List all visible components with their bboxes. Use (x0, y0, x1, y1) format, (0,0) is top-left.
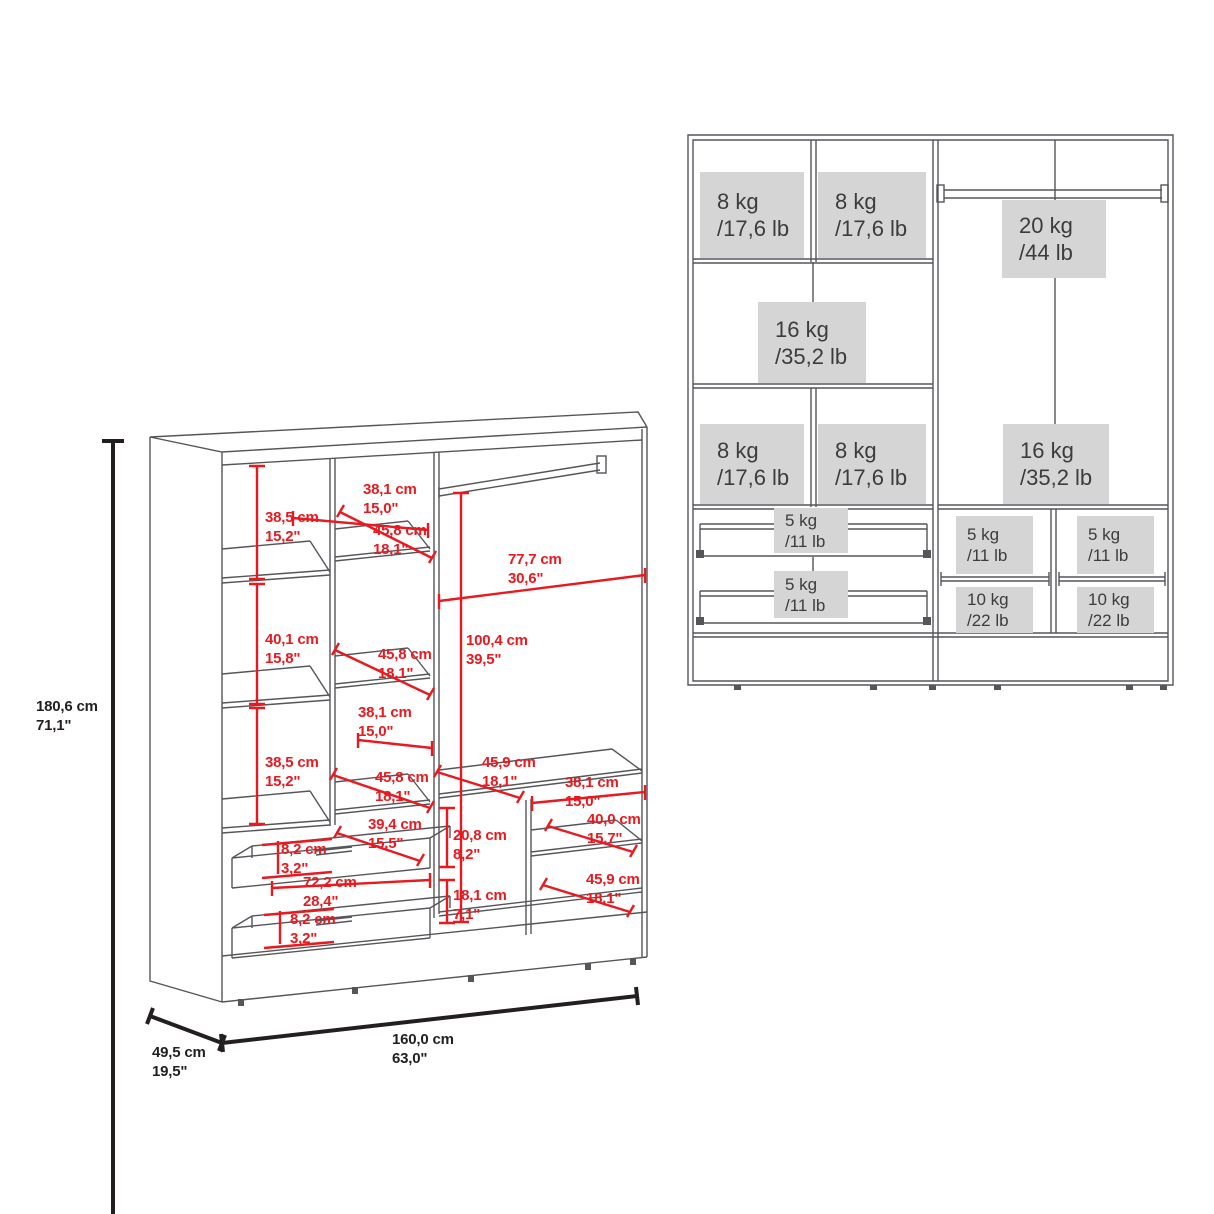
dim-in: 19,5" (152, 1062, 206, 1081)
wardrobe-feet (238, 958, 636, 1006)
dim-cm: 45,8 cm (375, 768, 429, 787)
dim-hanging-area-width: 77,7 cm 30,6" (508, 550, 562, 588)
capacity-kg: 5 kg (785, 574, 848, 595)
dim-overall-depth: 49,5 cm 19,5" (152, 1043, 206, 1081)
capacity-lb: /17,6 lb (835, 464, 926, 491)
dim-cm: 38,1 cm (358, 703, 412, 722)
capacity-lb: /17,6 lb (835, 215, 926, 242)
dim-cm: 45,8 cm (378, 645, 432, 664)
dim-right-upper-cubby-height: 20,8 cm 8,2" (453, 826, 507, 864)
capacity-lower-right-shelf: 8 kg /17,6 lb (818, 424, 926, 504)
dim-cm: 72,2 cm (303, 873, 357, 892)
capacity-lb: /17,6 lb (717, 464, 804, 491)
capacity-top-right-shelf: 8 kg /17,6 lb (818, 172, 926, 258)
dim-cm: 38,1 cm (363, 480, 417, 499)
capacity-middle-wide-shelf: 16 kg /35,2 lb (758, 302, 866, 383)
dim-cm: 45,9 cm (482, 753, 536, 772)
capacity-lb: /11 lb (1088, 545, 1154, 566)
dim-cm: 49,5 cm (152, 1043, 206, 1062)
capacity-kg: 5 kg (1088, 524, 1154, 545)
capacity-right-bottom-left-column: 10 kg /22 lb (956, 587, 1033, 633)
capacity-lower-left-shelf: 8 kg /17,6 lb (700, 424, 804, 504)
capacity-right-shelf-left-column: 5 kg /11 lb (956, 516, 1033, 574)
dim-in: 8,2" (453, 845, 507, 864)
capacity-lb: /22 lb (967, 610, 1033, 631)
capacity-hanging-section: 16 kg /35,2 lb (1003, 424, 1109, 504)
capacity-kg: 5 kg (785, 510, 848, 531)
capacity-kg: 5 kg (967, 524, 1033, 545)
dim-in: 39,5" (466, 650, 528, 669)
capacity-lb: /11 lb (785, 595, 848, 616)
dim-top-left-cell-height: 38,5 cm 15,2" (265, 508, 319, 546)
capacity-drawer-2: 5 kg /11 lb (774, 571, 848, 618)
dim-cm: 40,0 cm (587, 810, 641, 829)
dim-in: 15,0" (363, 499, 417, 518)
dim-cm: 180,6 cm (36, 697, 98, 716)
dim-middle-shelf-depth: 45,8 cm 18,1" (378, 645, 432, 683)
dim-bottom-right-shelf-depth: 45,9 cm 18,1" (586, 870, 640, 908)
dim-in: 3,2" (290, 929, 336, 948)
dim-in: 71,1" (36, 716, 98, 735)
capacity-lb: /11 lb (785, 531, 848, 552)
dim-in: 18,1" (375, 787, 429, 806)
capacity-hanging-rod: 20 kg /44 lb (1002, 200, 1106, 278)
capacity-kg: 10 kg (1088, 589, 1154, 610)
dim-cm: 20,8 cm (453, 826, 507, 845)
dim-lower-left-cell-height: 38,5 cm 15,2" (265, 753, 319, 791)
capacity-right-shelf-right-column: 5 kg /11 lb (1077, 516, 1154, 574)
dim-in: 15,5" (368, 834, 422, 853)
dim-cm: 8,2 cm (290, 910, 336, 929)
capacity-lb: /22 lb (1088, 610, 1154, 631)
capacity-lb: /35,2 lb (1020, 464, 1109, 491)
dim-middle-cell-width: 38,1 cm 15,0" (358, 703, 412, 741)
dim-top-shelf-depth: 45,8 cm 18,1" (373, 521, 427, 559)
dim-lower-shelf-depth: 45,8 cm 18,1" (375, 768, 429, 806)
dim-in: 30,6" (508, 569, 562, 588)
capacity-kg: 8 kg (717, 437, 804, 464)
dim-in: 18,1" (586, 889, 640, 908)
dim-in: 15,7" (587, 829, 641, 848)
dim-right-lower-cubby-height: 18,1 cm 7,1" (453, 886, 507, 924)
capacity-kg: 20 kg (1019, 212, 1106, 239)
capacity-lb: /35,2 lb (775, 343, 866, 370)
dim-in: 18,1" (378, 664, 432, 683)
dim-drawer2-inner-height: 8,2 cm 3,2" (290, 910, 336, 948)
dim-cm: 8,2 cm (281, 840, 327, 859)
capacity-top-left-shelf: 8 kg /17,6 lb (700, 172, 804, 258)
capacity-kg: 8 kg (835, 188, 926, 215)
dim-cm: 40,1 cm (265, 630, 319, 649)
dim-cm: 77,7 cm (508, 550, 562, 569)
dim-in: 15,0" (565, 792, 619, 811)
dim-middle-left-cell-height: 40,1 cm 15,8" (265, 630, 319, 668)
dim-top-middle-cell-width: 38,1 cm 15,0" (363, 480, 417, 518)
capacity-lb: /44 lb (1019, 239, 1106, 266)
capacity-kg: 16 kg (1020, 437, 1109, 464)
dim-in: 15,2" (265, 772, 319, 791)
dim-in: 63,0" (392, 1049, 454, 1068)
dim-right-shelf-depth: 45,9 cm 18,1" (482, 753, 536, 791)
dim-in: 28,4" (303, 892, 357, 911)
capacity-lb: /17,6 lb (717, 215, 804, 242)
dim-in: 15,8" (265, 649, 319, 668)
dim-in: 18,1" (482, 772, 536, 791)
dim-drawer-depth: 39,4 cm 15,5" (368, 815, 422, 853)
capacity-lb: /11 lb (967, 545, 1033, 566)
dim-overall-height: 180,6 cm 71,1" (36, 697, 98, 735)
dim-cm: 18,1 cm (453, 886, 507, 905)
dim-cm: 45,8 cm (373, 521, 427, 540)
dim-in: 18,1" (373, 540, 427, 559)
capacity-drawer-1: 5 kg /11 lb (774, 508, 848, 553)
dim-drawer-width: 72,2 cm 28,4" (303, 873, 357, 911)
capacity-kg: 8 kg (717, 188, 804, 215)
dim-in: 15,0" (358, 722, 412, 741)
dim-in: 7,1" (453, 905, 507, 924)
capacity-kg: 8 kg (835, 437, 926, 464)
wardrobe-spec-sheet: 38,5 cm 15,2" 38,1 cm 15,0" 45,8 cm 18,1… (0, 0, 1214, 1214)
capacity-kg: 16 kg (775, 316, 866, 343)
dim-cm: 38,1 cm (565, 773, 619, 792)
dim-cm: 38,5 cm (265, 753, 319, 772)
dim-cm: 45,9 cm (586, 870, 640, 889)
dim-cm: 100,4 cm (466, 631, 528, 650)
capacity-kg: 10 kg (967, 589, 1033, 610)
dim-right-cell-width: 38,1 cm 15,0" (565, 773, 619, 811)
dim-in: 15,2" (265, 527, 319, 546)
capacity-diagram-feet (734, 685, 1167, 690)
dim-overall-width: 160,0 cm 63,0" (392, 1030, 454, 1068)
dim-hanging-area-height: 100,4 cm 39,5" (466, 631, 528, 669)
dim-cm: 39,4 cm (368, 815, 422, 834)
dim-cm: 38,5 cm (265, 508, 319, 527)
capacity-right-bottom-right-column: 10 kg /22 lb (1077, 587, 1154, 633)
dim-cm: 160,0 cm (392, 1030, 454, 1049)
dim-right-shelf-width: 40,0 cm 15,7" (587, 810, 641, 848)
